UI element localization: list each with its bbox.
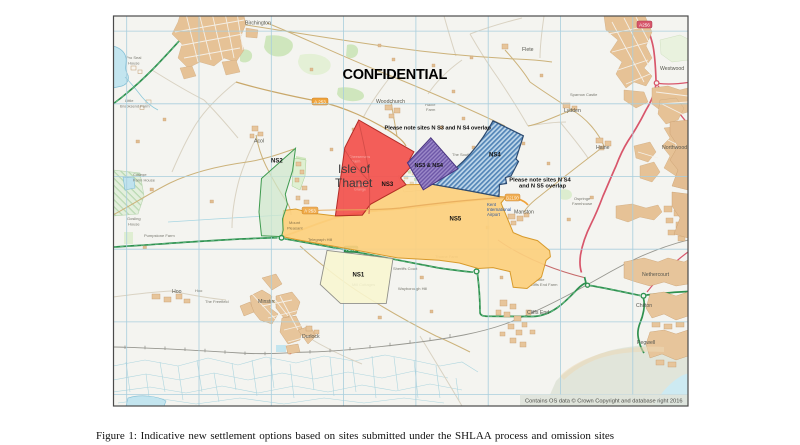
svg-text:Mount: Mount (289, 220, 301, 225)
svg-text:Pleasant: Pleasant (287, 226, 303, 231)
svg-text:Durlock: Durlock (302, 334, 320, 340)
svg-text:Flete: Flete (522, 47, 534, 53)
svg-text:B2190: B2190 (506, 195, 519, 200)
svg-text:Farm House: Farm House (133, 178, 156, 183)
svg-text:Nethercourt: Nethercourt (642, 272, 670, 278)
svg-text:Thanet: Thanet (335, 176, 373, 190)
svg-text:The Freefield: The Freefield (205, 299, 229, 304)
svg-text:Birchington: Birchington (245, 21, 271, 27)
svg-text:NS4: NS4 (489, 153, 501, 159)
svg-text:Manston: Manston (514, 210, 534, 216)
svg-text:Chilton: Chilton (636, 303, 652, 309)
svg-text:Airport: Airport (487, 212, 501, 217)
svg-text:Lydden: Lydden (564, 108, 581, 114)
svg-text:Pro Seal: Pro Seal (126, 55, 141, 60)
svg-text:Wayborough Hill: Wayborough Hill (398, 286, 427, 291)
svg-text:Brooksend Farm: Brooksend Farm (120, 104, 150, 109)
svg-text:Please note sites N S3 and N S: Please note sites N S3 and N S4 overlap (385, 126, 492, 132)
svg-text:NS2: NS2 (271, 159, 283, 165)
svg-text:NS3 & NS4: NS3 & NS4 (415, 163, 444, 169)
svg-text:Sheriffs Court: Sheriffs Court (393, 266, 418, 271)
svg-text:Farmhouse: Farmhouse (572, 201, 593, 206)
svg-text:Pumpstone Farm: Pumpstone Farm (144, 233, 175, 238)
svg-text:Haine: Haine (596, 145, 610, 151)
svg-text:Farm: Farm (426, 107, 436, 112)
svg-text:Cheesemans: Cheesemans (349, 155, 370, 159)
svg-text:Contains OS data © Crown Copyr: Contains OS data © Crown Copyright and d… (525, 397, 683, 404)
svg-text:Isle of: Isle of (338, 162, 371, 176)
svg-text:A 253: A 253 (304, 208, 316, 213)
svg-text:NS1: NS1 (353, 272, 365, 278)
svg-text:House: House (128, 222, 140, 227)
svg-text:NS5: NS5 (450, 216, 462, 222)
svg-text:A256: A256 (639, 22, 650, 27)
svg-text:Minster: Minster (258, 299, 275, 305)
svg-text:House: House (128, 61, 140, 66)
svg-text:and N S5 overlap: and N S5 overlap (519, 183, 566, 189)
svg-text:Acol: Acol (254, 139, 264, 145)
svg-text:Gosling: Gosling (127, 216, 141, 221)
svg-text:Hoo: Hoo (172, 289, 182, 295)
svg-text:CONFIDENTIAL: CONFIDENTIAL (343, 67, 448, 83)
svg-text:NS3: NS3 (382, 182, 394, 188)
svg-text:Sparrow Castle: Sparrow Castle (570, 92, 598, 97)
svg-text:Pegwell: Pegwell (637, 340, 655, 346)
svg-text:Westwood: Westwood (660, 66, 684, 72)
svg-text:Northwood: Northwood (662, 145, 687, 151)
svg-text:Cliffs End: Cliffs End (527, 310, 549, 316)
svg-text:Telegraph Hill: Telegraph Hill (308, 237, 332, 242)
